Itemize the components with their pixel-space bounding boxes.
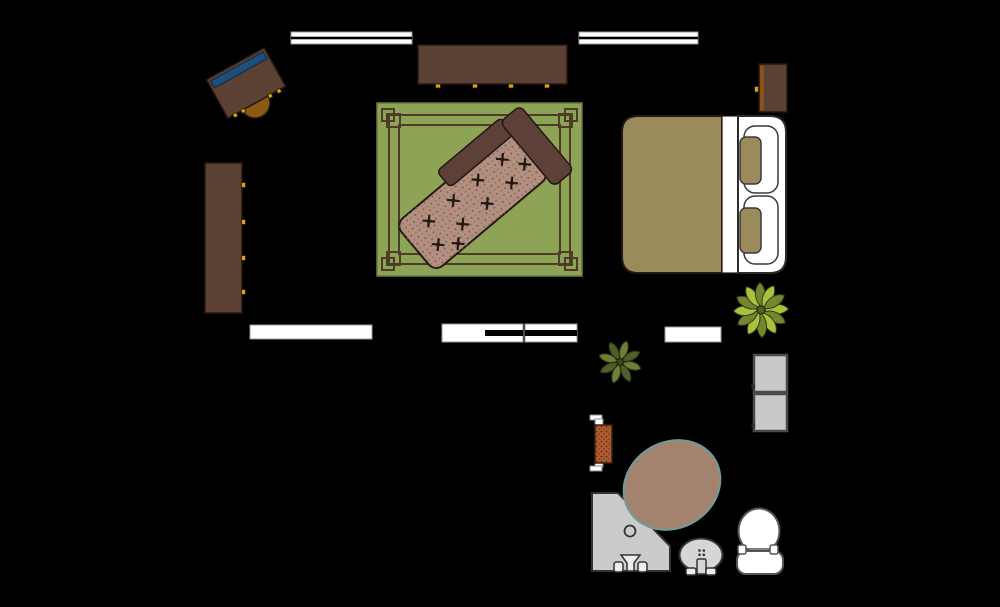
- pillow-cushion: [740, 208, 761, 253]
- window-glass-line: [525, 330, 577, 336]
- nightstand[interactable]: [755, 64, 788, 112]
- cabinet-hinge: [752, 423, 755, 428]
- window-top-right[interactable]: [579, 32, 698, 44]
- floor-background: [0, 0, 1000, 607]
- drawer-knob: [242, 256, 246, 261]
- wardrobe[interactable]: [205, 163, 246, 313]
- door-bathroom[interactable]: [665, 327, 721, 342]
- sliding-door-bottom[interactable]: [442, 324, 523, 342]
- dresser-body: [418, 45, 567, 84]
- window-top-left[interactable]: [291, 32, 412, 44]
- drawer-knob: [509, 84, 514, 88]
- drawer-knob: [436, 84, 441, 88]
- toilet[interactable]: [737, 509, 783, 575]
- sink-foot: [686, 568, 696, 575]
- bed-sheet-strip: [722, 116, 738, 273]
- pedestal-sink[interactable]: [680, 539, 723, 576]
- cabinet-box: [754, 355, 787, 392]
- cabinet-lower[interactable]: [752, 394, 788, 431]
- toilet-hinge-tab: [738, 545, 746, 554]
- sliding-door-slot: [485, 330, 523, 336]
- shower-knob: [614, 562, 623, 572]
- nightstand-edge: [760, 66, 764, 111]
- drawer-knob: [242, 183, 246, 188]
- floor-plan-svg: [0, 0, 1000, 607]
- bed-blanket: [622, 116, 722, 273]
- door-opening-left[interactable]: [250, 325, 372, 339]
- drawer-knob: [473, 84, 478, 88]
- bed[interactable]: [622, 116, 786, 273]
- pillow-cushion: [740, 137, 761, 184]
- drawer-knob: [242, 220, 246, 225]
- drawer-knob: [545, 84, 550, 88]
- radiator-bracket: [590, 466, 602, 471]
- cabinet-upper[interactable]: [752, 355, 788, 392]
- wardrobe-body: [205, 163, 242, 313]
- cabinet-hinge: [752, 384, 755, 389]
- drawer-knob: [242, 290, 246, 295]
- dresser[interactable]: [418, 45, 567, 88]
- toilet-hinge-tab: [770, 545, 778, 554]
- drawer-knob: [755, 87, 759, 93]
- radiator-texture: [595, 425, 612, 463]
- floor-plan-canvas: [0, 0, 1000, 607]
- window-bottom[interactable]: [525, 324, 577, 342]
- shower-knob: [638, 562, 647, 572]
- sink-foot: [706, 568, 716, 575]
- window-glass-line: [579, 37, 698, 40]
- window-glass-line: [291, 37, 412, 40]
- plant-center: [758, 307, 765, 314]
- cabinet-box: [754, 394, 787, 431]
- sink-pedestal: [697, 559, 706, 574]
